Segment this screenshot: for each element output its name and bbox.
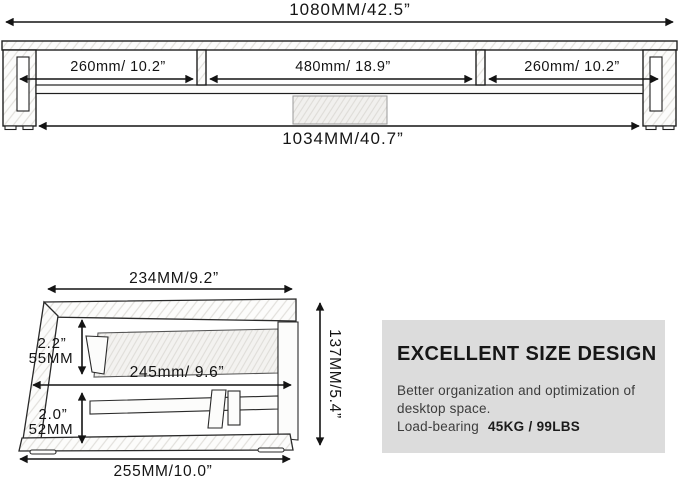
side-center-post-1 <box>208 390 226 428</box>
dimension-section-left: 260mm/ 10.2” <box>20 59 193 79</box>
divider-left <box>197 50 206 85</box>
middle-depth-label: 245mm/ 9.6” <box>130 364 225 381</box>
side-view-diagram: 234MM/9.2” 2.2” 55MM 245mm/ 9.6” 2.0” 52… <box>0 252 360 480</box>
top-board <box>2 41 677 50</box>
center-support <box>293 96 387 124</box>
info-box: EXCELLENT SIZE DESIGN Better organizatio… <box>382 320 665 453</box>
divider-right <box>476 50 485 85</box>
right-foot-inner <box>646 126 656 130</box>
right-leg-cutout <box>650 57 662 111</box>
load-bearing-label: Load-bearing <box>397 419 479 434</box>
inner-width-label: 1034MM/40.7” <box>282 129 404 148</box>
side-top-board <box>44 299 296 321</box>
load-bearing-value: 45KG / 99LBS <box>488 419 580 434</box>
dimension-inner-width: 1034MM/40.7” <box>39 126 639 148</box>
left-leg-cutout <box>17 57 29 111</box>
dimension-bottom-depth: 255MM/10.0” <box>20 459 290 480</box>
right-foot-outer <box>663 126 674 130</box>
section-right-label: 260mm/ 10.2” <box>524 59 619 75</box>
dimension-top-depth: 234MM/9.2” <box>48 270 292 289</box>
left-foot-outer <box>5 126 16 130</box>
side-lower-bar <box>90 396 278 414</box>
side-left-bracket <box>86 336 108 374</box>
left-foot-inner <box>23 126 33 130</box>
height-label: 137MM/5.4” <box>326 329 343 419</box>
dimension-section-center: 480mm/ 18.9” <box>210 59 472 79</box>
total-width-label: 1080MM/42.5” <box>289 0 411 19</box>
front-view-stand <box>2 41 677 130</box>
load-bearing-row: Load-bearing45KG / 99LBS <box>397 418 653 436</box>
upper-gap-mm-label: 55MM <box>29 350 74 367</box>
dimension-height: 137MM/5.4” <box>320 303 343 445</box>
section-center-label: 480mm/ 18.9” <box>295 59 390 75</box>
info-description-line1: Better organization and optimization of <box>397 382 653 400</box>
front-view-diagram: 1080MM/42.5” 260mm/ 10.2” 480mm/ 18.9” 2… <box>0 0 679 150</box>
lower-shelf <box>36 85 643 94</box>
side-center-post-2 <box>228 391 240 425</box>
info-description-line2: desktop space. <box>397 400 653 418</box>
info-description: Better organization and optimization of … <box>397 382 653 436</box>
top-depth-label: 234MM/9.2” <box>129 270 219 287</box>
product-dimension-sheet: 1080MM/42.5” 260mm/ 10.2” 480mm/ 18.9” 2… <box>0 0 679 480</box>
side-foot-right <box>258 448 284 452</box>
dimension-total-width: 1080MM/42.5” <box>6 0 673 22</box>
section-left-label: 260mm/ 10.2” <box>70 59 165 75</box>
dimension-section-right: 260mm/ 10.2” <box>489 59 658 79</box>
bottom-depth-label: 255MM/10.0” <box>113 463 212 480</box>
side-right-post <box>278 322 298 440</box>
side-foot-left <box>30 450 56 454</box>
lower-gap-mm-label: 52MM <box>29 421 74 438</box>
info-title: EXCELLENT SIZE DESIGN <box>397 343 653 366</box>
